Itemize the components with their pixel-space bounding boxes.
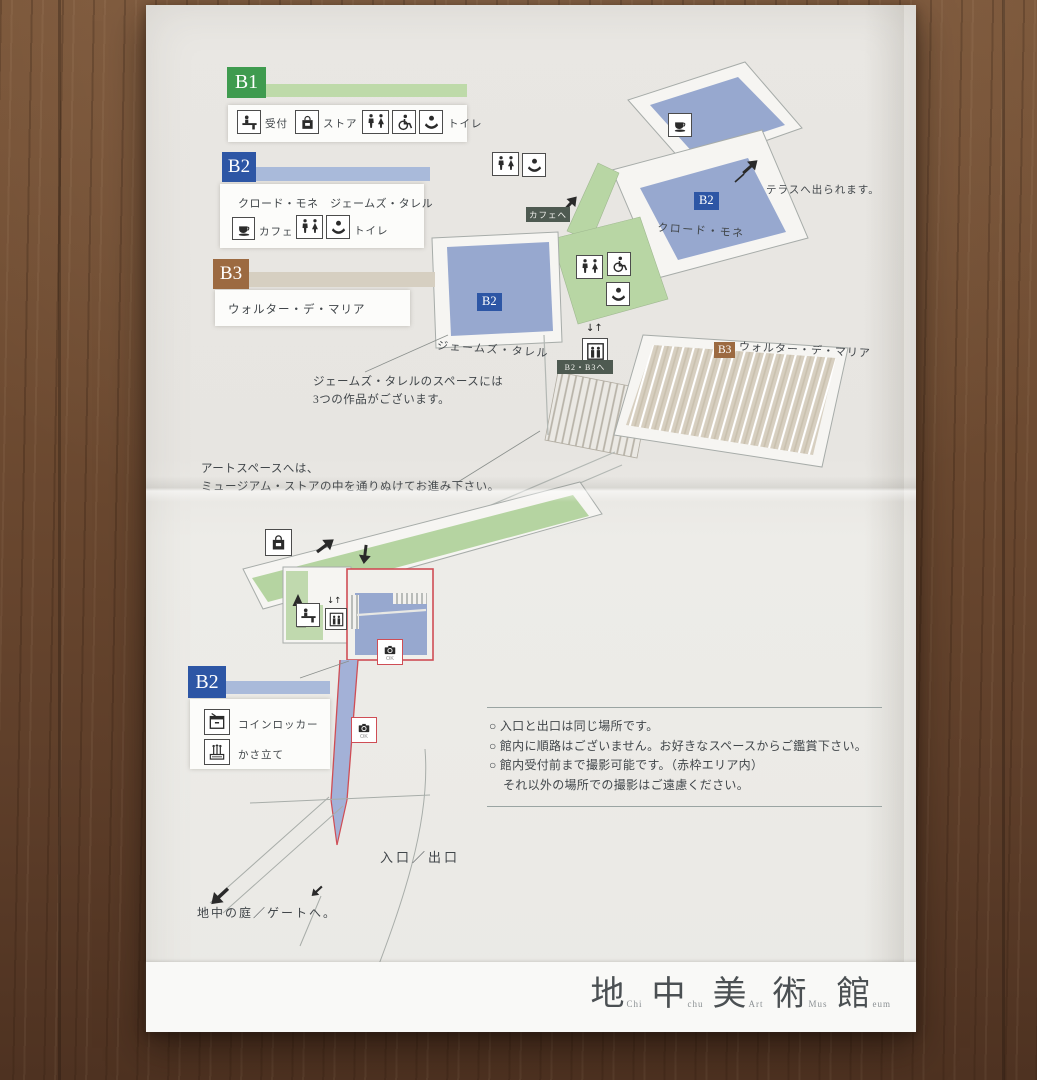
wheelchair-icon: [607, 252, 631, 276]
baby-icon: [522, 153, 546, 177]
logo-kanji: 美: [712, 977, 746, 1013]
baby-icon: [419, 110, 443, 134]
wood-plank-seam: [1002, 0, 1005, 1080]
b1-floor-badge: B1: [227, 67, 266, 98]
garden-gate-label: 地中の庭／ゲートへ。: [197, 904, 337, 921]
guideline-line: ○ 館内に順路はございません。お好きなスペースからご鑑賞下さい。: [489, 737, 882, 757]
photography-guidelines: ○ 入口と出口は同じ場所です。 ○ 館内に順路はございません。お好きなスペースか…: [487, 707, 882, 807]
baby-icon: [326, 215, 350, 239]
cafe-icon: [232, 217, 255, 240]
logo-kanji: 地: [590, 977, 624, 1013]
wooden-desk: B1 受付 ストア トイレ B2 クロード・モネ ジェームズ・タレル カフェ ト…: [0, 0, 1037, 1080]
elevator-arrows-lower: ↓↑: [327, 596, 341, 606]
toilet-icon: [492, 152, 519, 176]
toilet-icon: [362, 110, 389, 134]
logo-latin: Art: [748, 999, 763, 1009]
b3-floor-badge: B3: [213, 259, 249, 289]
turrell-note: ジェームズ・タレルのスペースには 3つの作品がございます。: [313, 374, 503, 409]
umbrella-stand-label: かさ立て: [238, 747, 284, 762]
logo-kanji: 術: [772, 977, 806, 1013]
turrell-note-line2: 3つの作品がございます。: [313, 392, 503, 410]
logo-latin: chu: [687, 999, 703, 1009]
logo-kanji: 中: [651, 977, 685, 1013]
cafe-direction-sign: カフェへ: [526, 207, 570, 222]
logo-latin: Mus: [808, 999, 827, 1009]
turrell-note-pointer-line: [365, 335, 448, 372]
museum-floor-map-brochure: B1 受付 ストア トイレ B2 クロード・モネ ジェームズ・タレル カフェ ト…: [146, 5, 916, 1032]
entrance-exit-label: 入口／出口: [380, 847, 460, 866]
logo-latin: eum: [873, 999, 892, 1009]
toilet-icon: [576, 255, 603, 279]
monet-room-badge: B2: [694, 192, 719, 210]
artspace-note: アートスペースへは、 ミュージアム・ストアの中を通りぬけてお進み下さい。: [201, 461, 500, 496]
umbrella-stand-icon: [204, 739, 230, 765]
reception-icon: [237, 110, 261, 134]
paper-bottom-strip: 地Chi 中chu 美Art 術Mus 館eum: [146, 962, 916, 1032]
wheelchair-icon: [392, 110, 416, 134]
b2-b3-direction-sign: B2・B3へ: [557, 360, 613, 374]
baby-icon: [606, 282, 630, 306]
turrell-room-badge: B2: [477, 293, 502, 311]
camera-ok-label: OK: [386, 657, 394, 662]
artspace-note-line1: アートスペースへは、: [201, 461, 500, 479]
b2-lower-legend-bar: [226, 681, 330, 694]
reception-icon: [296, 603, 320, 627]
b3-legend-bar: [249, 272, 435, 287]
camera-allowed-icon: OK: [351, 717, 377, 743]
b2-legend-bar: [256, 167, 430, 181]
logo-latin: Chi: [626, 999, 642, 1009]
reception-label: 受付: [265, 116, 288, 131]
coin-locker-label: コインロッカー: [238, 717, 319, 732]
cafe-icon: [668, 113, 692, 137]
store-icon: [265, 529, 292, 556]
artspace-note-line2: ミュージアム・ストアの中を通りぬけてお進み下さい。: [201, 479, 500, 497]
guideline-line: ○ 館内受付前まで撮影可能です。（赤枠エリア内）: [489, 756, 882, 776]
elevator-icon: [325, 608, 347, 630]
b2-artists-label: クロード・モネ ジェームズ・タレル: [238, 195, 433, 211]
toilet-label: トイレ: [448, 116, 483, 131]
toilet-label: トイレ: [354, 223, 389, 238]
guideline-line: ○ 入口と出口は同じ場所です。: [489, 717, 882, 737]
coin-locker-icon: [204, 709, 230, 735]
de-maria-badge: B3: [714, 342, 735, 358]
garden-direction-arrow-small: [309, 883, 325, 899]
cafe-label: カフェ: [259, 224, 294, 239]
b2-floor-badge: B2: [222, 152, 256, 182]
elevator-arrows-upper: ↓↑: [586, 323, 603, 334]
camera-ok-label: OK: [360, 735, 368, 740]
entrance-corridor-shape: [331, 660, 358, 845]
turrell-room-shape: [432, 232, 562, 348]
guideline-line: それ以外の場所での撮影はご遠慮ください。: [489, 776, 882, 796]
wood-plank-seam: [58, 0, 61, 1080]
store-icon: [295, 110, 319, 134]
store-label: ストア: [323, 116, 358, 131]
camera-allowed-icon: OK: [377, 639, 403, 665]
logo-kanji: 館: [837, 977, 871, 1013]
terrace-note: テラスへ出られます。: [766, 182, 880, 197]
b3-artist-label: ウォルター・デ・マリア: [228, 301, 366, 317]
turrell-note-line1: ジェームズ・タレルのスペースには: [313, 374, 503, 392]
museum-logo: 地Chi 中chu 美Art 術Mus 館eum: [590, 977, 900, 1013]
b1-legend-bar: [266, 84, 467, 97]
toilet-icon: [296, 215, 323, 239]
b2-lower-floor-badge: B2: [188, 666, 226, 698]
